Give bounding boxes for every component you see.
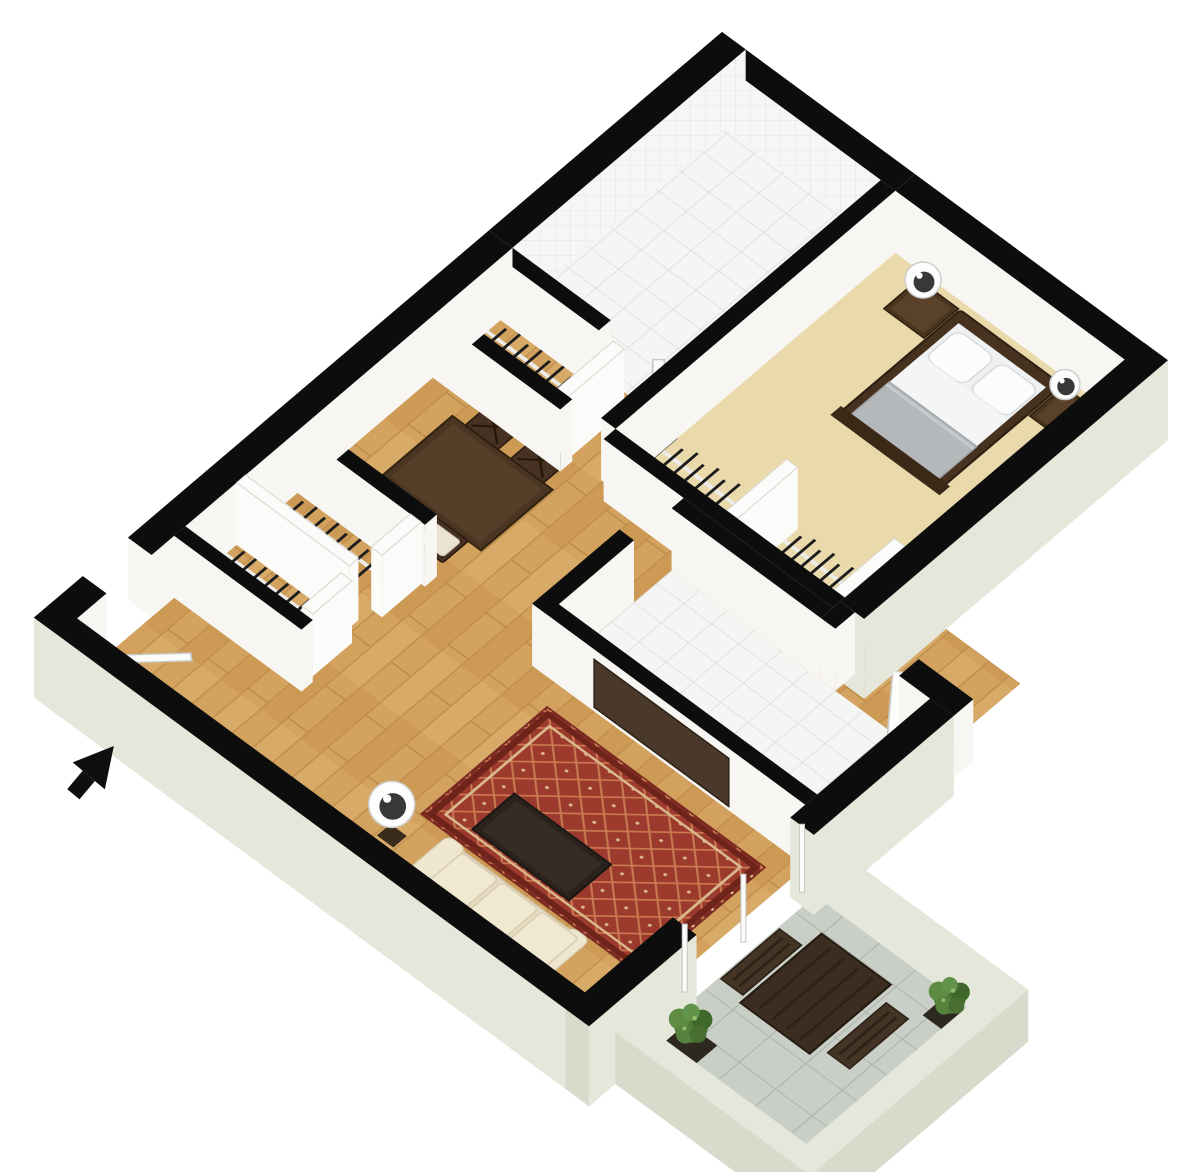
wall-step-a-face — [821, 618, 836, 691]
nightstand-lamp-right-highlight — [1059, 378, 1064, 383]
wall-layer — [34, 32, 1168, 1172]
balcony-plant-south — [690, 1026, 707, 1043]
balcony-plant-south-leaf — [692, 1016, 697, 1021]
sliding-door-frame — [682, 924, 687, 992]
balcony-plant-north-leaf — [951, 988, 955, 992]
balcony-plant-south-leaf — [682, 1026, 686, 1030]
floorplan-scene — [0, 0, 1200, 1172]
living-floor-lamp-highlight — [383, 795, 391, 803]
balcony-plant-north — [948, 998, 964, 1014]
nightstand-lamp-left-highlight — [916, 272, 922, 278]
wall-linen-sw-face — [560, 399, 572, 471]
wall-hall-closet-s-face — [302, 620, 313, 692]
balcony-plant-north-leaf — [942, 998, 946, 1002]
sliding-door-frame — [741, 874, 746, 942]
sliding-door-frame — [800, 824, 805, 892]
panel-hall-closet-post-a-face — [371, 547, 382, 617]
balcony-plant-north — [942, 977, 958, 993]
wall-hall-closet-n-face — [425, 514, 437, 586]
balcony-plant-south — [683, 1004, 700, 1021]
floorplan-canvas — [0, 0, 1200, 1172]
